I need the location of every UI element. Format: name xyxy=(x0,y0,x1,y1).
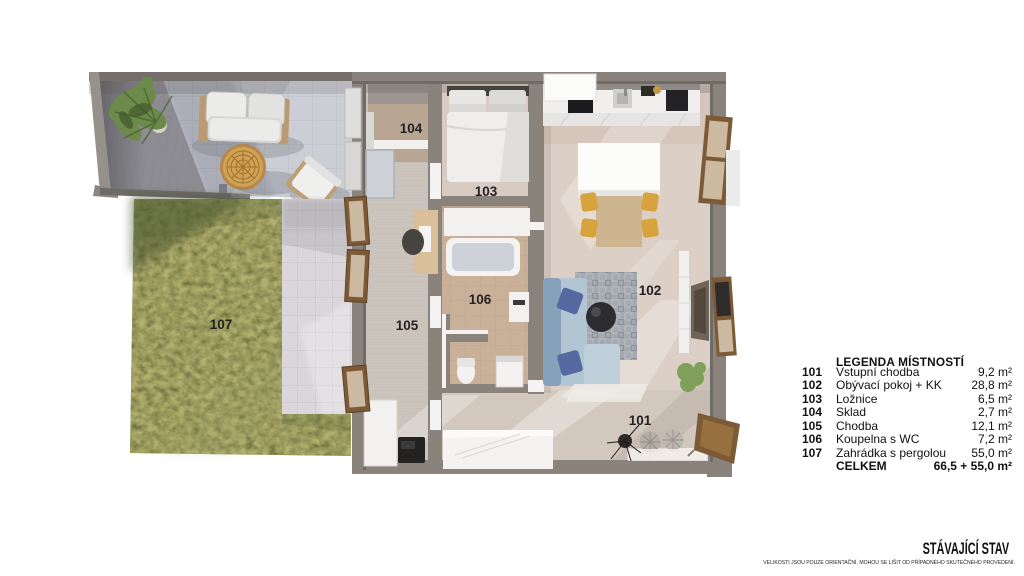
svg-text:102: 102 xyxy=(639,283,662,298)
svg-text:104: 104 xyxy=(400,121,423,136)
svg-text:101: 101 xyxy=(629,413,652,428)
svg-text:103: 103 xyxy=(475,184,498,199)
svg-text:107: 107 xyxy=(210,317,233,332)
svg-text:106: 106 xyxy=(469,292,492,307)
svg-text:105: 105 xyxy=(396,318,419,333)
